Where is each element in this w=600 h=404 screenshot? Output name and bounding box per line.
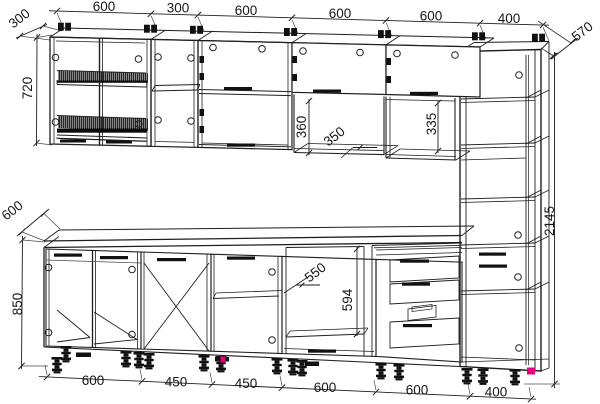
svg-text:600: 600	[82, 373, 105, 388]
svg-text:400: 400	[485, 385, 508, 400]
svg-text:594: 594	[340, 288, 355, 311]
svg-text:450: 450	[165, 375, 188, 390]
svg-text:720: 720	[20, 77, 35, 100]
svg-text:360: 360	[294, 116, 309, 139]
svg-text:600: 600	[406, 383, 429, 398]
svg-text:600: 600	[329, 6, 352, 21]
svg-text:600: 600	[314, 380, 337, 395]
svg-text:600: 600	[93, 0, 116, 14]
svg-text:600: 600	[235, 3, 258, 18]
svg-text:400: 400	[498, 11, 521, 26]
svg-text:850: 850	[10, 293, 25, 316]
svg-text:300: 300	[167, 1, 190, 16]
svg-text:600: 600	[420, 9, 443, 24]
svg-text:2145: 2145	[542, 206, 557, 236]
svg-text:450: 450	[235, 376, 258, 391]
svg-text:335: 335	[424, 113, 439, 136]
